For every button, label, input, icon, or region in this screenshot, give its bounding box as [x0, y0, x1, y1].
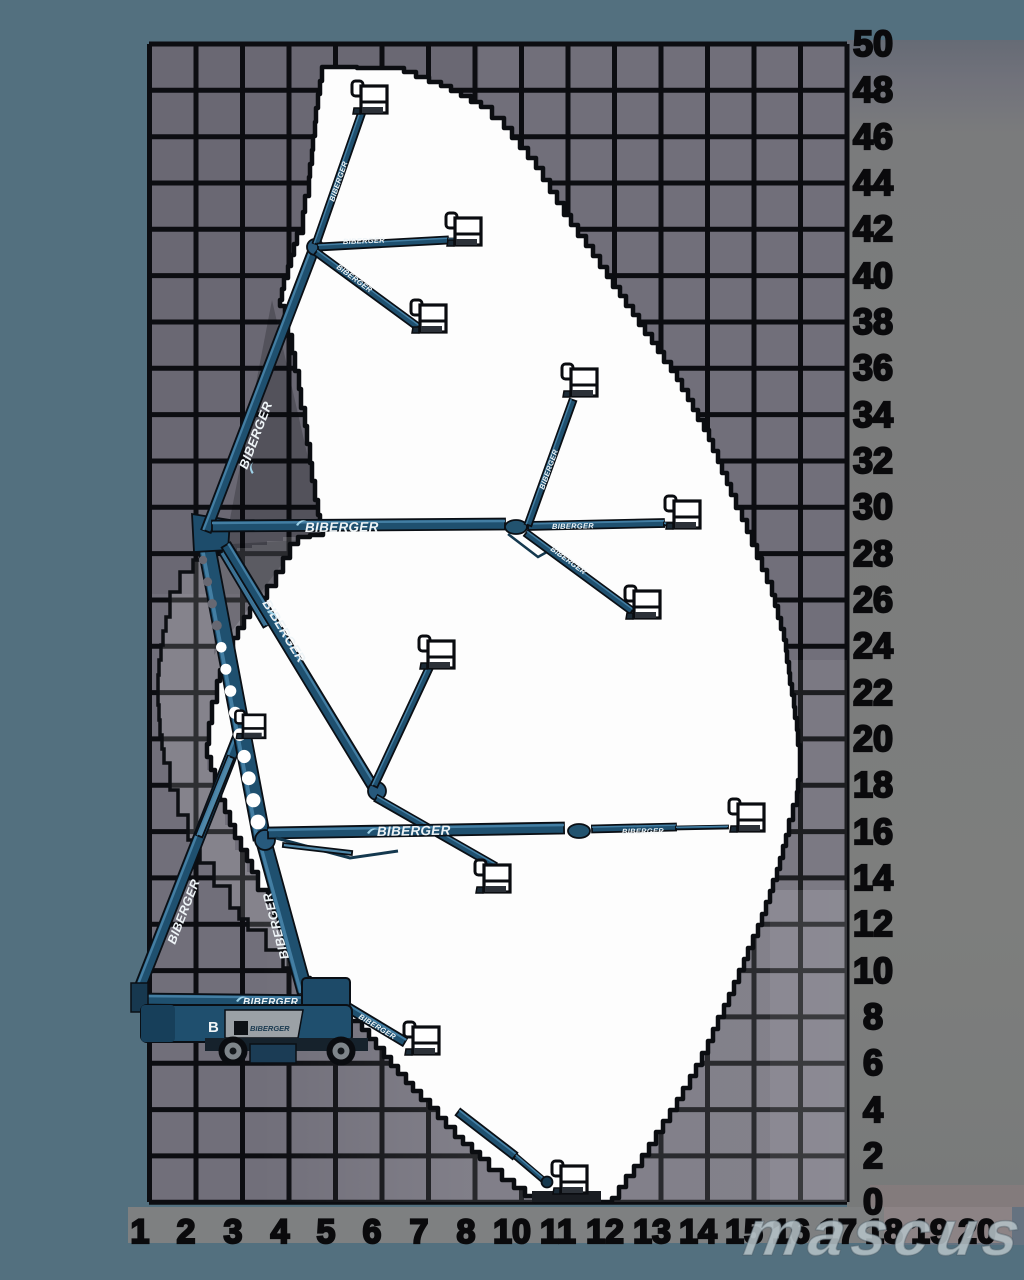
svg-text:4: 4 [271, 1213, 290, 1251]
svg-text:26: 26 [853, 579, 893, 620]
svg-text:11: 11 [540, 1213, 576, 1251]
svg-text:36: 36 [853, 347, 893, 388]
svg-text:BIBERGER: BIBERGER [377, 823, 451, 839]
svg-text:18: 18 [853, 764, 893, 805]
svg-text:BIBERGER: BIBERGER [622, 826, 664, 836]
svg-text:50: 50 [853, 23, 893, 64]
svg-text:5: 5 [317, 1213, 336, 1251]
svg-text:34: 34 [853, 394, 893, 435]
svg-text:30: 30 [853, 486, 893, 527]
svg-text:12: 12 [586, 1213, 624, 1251]
svg-text:10: 10 [853, 950, 893, 991]
svg-text:3: 3 [224, 1213, 243, 1251]
svg-text:B: B [208, 1019, 219, 1036]
svg-text:44: 44 [853, 162, 893, 203]
svg-text:BIBERGER: BIBERGER [552, 521, 594, 531]
svg-text:2: 2 [863, 1135, 883, 1176]
svg-text:46: 46 [853, 116, 893, 157]
svg-text:8: 8 [863, 996, 883, 1037]
svg-text:BIBERGER: BIBERGER [305, 519, 379, 535]
svg-text:10: 10 [493, 1213, 531, 1251]
svg-text:2: 2 [177, 1213, 196, 1251]
svg-text:14: 14 [853, 857, 893, 898]
svg-text:24: 24 [853, 625, 893, 666]
svg-text:6: 6 [863, 1042, 883, 1083]
svg-text:mascus: mascus [740, 1197, 1024, 1268]
svg-text:BIBERGER: BIBERGER [250, 1024, 290, 1033]
svg-text:14: 14 [679, 1213, 717, 1251]
svg-text:4: 4 [863, 1089, 883, 1130]
svg-text:42: 42 [853, 208, 893, 249]
svg-text:40: 40 [853, 255, 893, 296]
svg-text:8: 8 [457, 1213, 476, 1251]
svg-text:16: 16 [853, 811, 893, 852]
svg-text:6: 6 [363, 1213, 382, 1251]
svg-text:20: 20 [853, 718, 893, 759]
svg-text:13: 13 [633, 1213, 671, 1251]
svg-text:BIBERGER: BIBERGER [343, 236, 386, 246]
svg-text:7: 7 [410, 1213, 429, 1251]
svg-text:28: 28 [853, 533, 893, 574]
svg-text:32: 32 [853, 440, 893, 481]
svg-text:38: 38 [853, 301, 893, 342]
svg-text:22: 22 [853, 672, 893, 713]
svg-text:12: 12 [853, 903, 893, 944]
svg-text:48: 48 [853, 69, 893, 110]
svg-text:1: 1 [131, 1213, 150, 1251]
